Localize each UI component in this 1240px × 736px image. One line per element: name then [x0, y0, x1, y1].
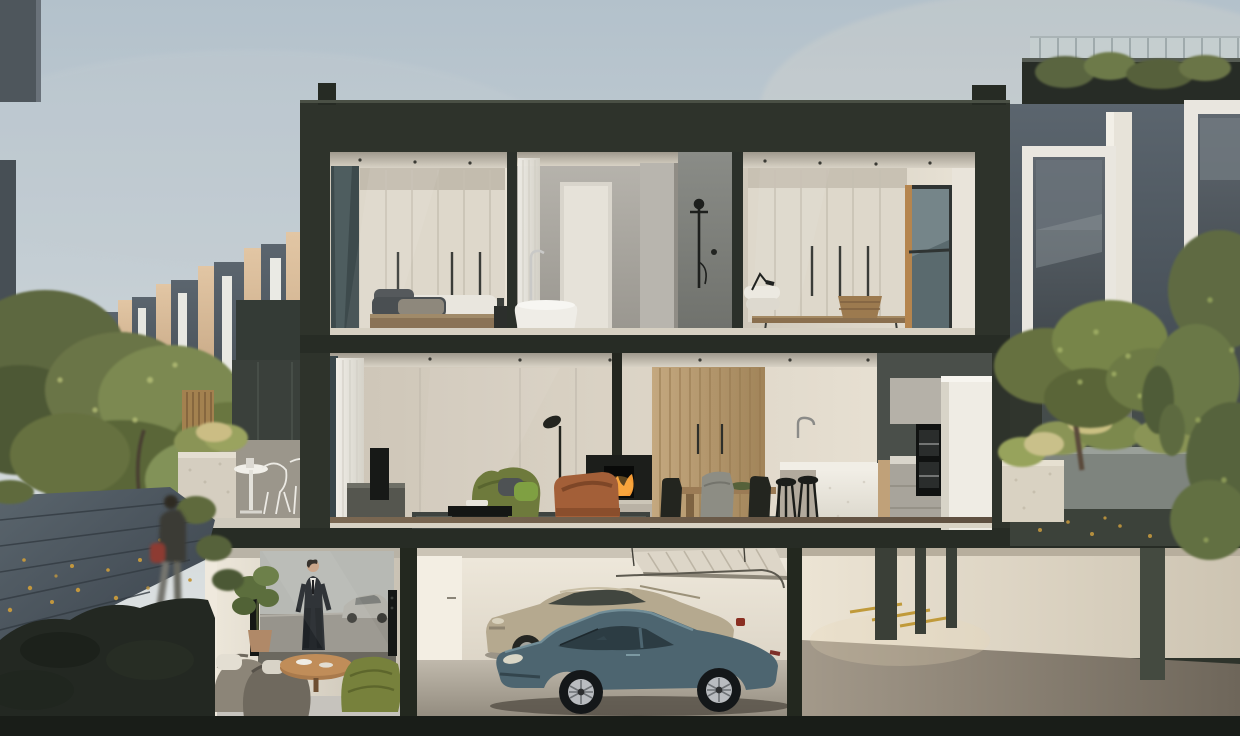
- corner-window: [905, 185, 953, 332]
- pillows-stack: [744, 286, 780, 310]
- wall-divider: [732, 152, 743, 335]
- porsche-wheel-front: [559, 670, 603, 714]
- architectural-render: [0, 0, 1240, 736]
- woven-basket: [838, 296, 882, 318]
- floor-edge: [330, 328, 975, 335]
- porsche-wheel-rear: [697, 668, 741, 712]
- driveway: [802, 548, 1240, 716]
- projector-screen: [260, 551, 394, 654]
- stone-column: [640, 163, 678, 335]
- shower-wall: [678, 152, 732, 335]
- bedroom-1: [330, 152, 511, 338]
- shower-bottle: [711, 249, 717, 255]
- bathroom: [515, 152, 732, 339]
- living-floor: [330, 353, 992, 530]
- pantry-monolith: [941, 376, 992, 530]
- wall-divider: [400, 548, 417, 736]
- bedroom-2: [743, 152, 975, 338]
- floor-edge: [330, 523, 992, 528]
- left-foreground: [0, 480, 244, 736]
- ground-shadow: [0, 716, 1240, 736]
- wall-ovens: [916, 424, 942, 496]
- green-ottoman: [341, 657, 401, 712]
- garage-door-frame: [787, 548, 802, 736]
- floor-slab: [300, 335, 1010, 353]
- stone-planter-right: [998, 432, 1064, 522]
- garage: [417, 548, 790, 722]
